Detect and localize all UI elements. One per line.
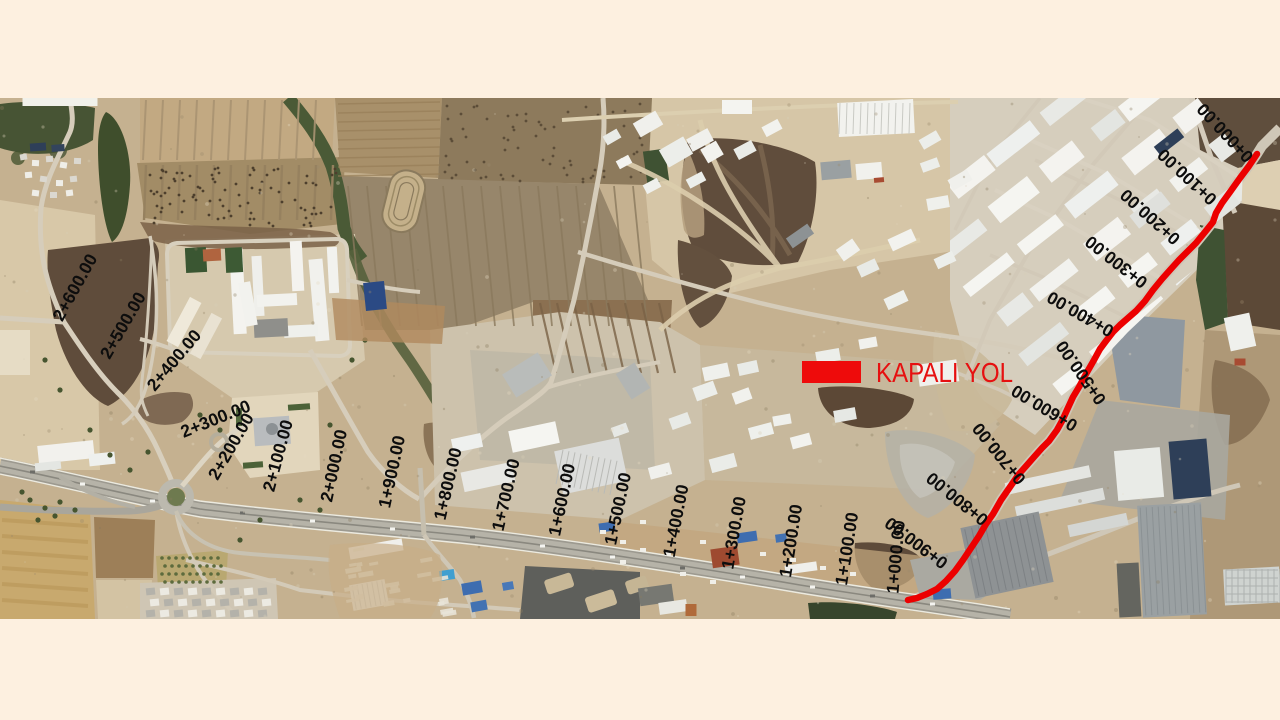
svg-text:KAPALI YOL: KAPALI YOL [876,357,1013,388]
